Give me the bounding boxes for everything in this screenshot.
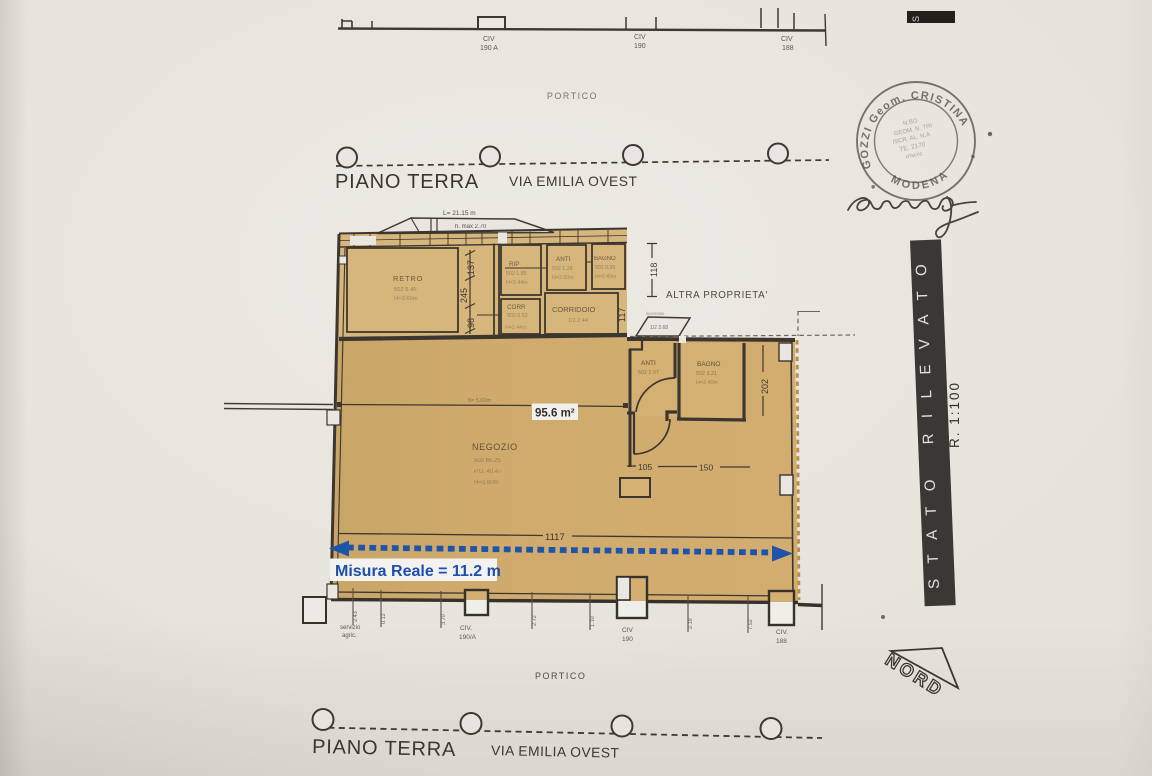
svg-text:RETRO: RETRO: [393, 274, 423, 283]
svg-text:CIV: CIV: [622, 627, 634, 634]
svg-text:CIV: CIV: [483, 36, 495, 43]
svg-text:BAGNO: BAGNO: [697, 361, 720, 368]
svg-text:190: 190: [622, 636, 633, 643]
svg-text:502 5.45: 502 5.45: [394, 287, 417, 293]
svg-text:d'iscriz: d'iscriz: [906, 151, 924, 160]
svg-text:190: 190: [634, 43, 646, 50]
svg-text:2.72: 2.72: [532, 615, 538, 626]
svg-text:502 65.25: 502 65.25: [474, 458, 501, 464]
svg-text:137: 137: [466, 260, 476, 275]
svg-text:CIV.: CIV.: [460, 625, 472, 632]
svg-text:2.19: 2.19: [688, 618, 694, 629]
svg-text:118: 118: [649, 263, 659, 277]
svg-text:L= 21.15 m: L= 21.15 m: [443, 210, 476, 217]
svg-text:190/A: 190/A: [459, 634, 477, 641]
svg-text:3.70: 3.70: [441, 614, 447, 625]
svg-text:lucernario: lucernario: [646, 311, 665, 316]
svg-text:NEGOZIO: NEGOZIO: [472, 442, 518, 452]
svg-text:117: 117: [617, 308, 627, 322]
svg-text:ANTI: ANTI: [641, 360, 656, 367]
svg-text:502 3.21: 502 3.21: [696, 371, 717, 377]
svg-text:1/2 2.44: 1/2 2.44: [568, 318, 588, 324]
svg-text:PORTICO: PORTICO: [547, 91, 598, 101]
svg-text:S: S: [911, 16, 921, 22]
svg-text:H=2.44m: H=2.44m: [505, 325, 527, 331]
svg-text:H=3.60m: H=3.60m: [474, 480, 499, 486]
svg-text:H=2.40m: H=2.40m: [696, 380, 719, 386]
svg-text:202: 202: [760, 379, 770, 394]
svg-text:VIA EMILIA OVEST: VIA EMILIA OVEST: [509, 174, 637, 189]
svg-text:H=3.60m: H=3.60m: [552, 275, 574, 281]
svg-text:H=3.44m: H=3.44m: [506, 280, 528, 286]
svg-text:502 0.52: 502 0.52: [507, 313, 528, 319]
svg-text:7.52: 7.52: [748, 619, 754, 630]
svg-text:CORR: CORR: [507, 304, 526, 311]
svg-text:105: 105: [638, 462, 652, 472]
svg-text:Misura Reale = 11.2 m: Misura Reale = 11.2 m: [335, 563, 501, 580]
svg-text:190 A: 190 A: [480, 45, 498, 52]
svg-text:150: 150: [699, 463, 713, 473]
svg-text:ALTRA PROPRIETA': ALTRA PROPRIETA': [666, 290, 768, 301]
svg-text:CIV: CIV: [634, 34, 646, 41]
svg-text:ANTI: ANTI: [556, 256, 571, 263]
svg-text:NORD: NORD: [882, 649, 948, 700]
svg-text:188: 188: [776, 638, 787, 645]
svg-text:PIANO TERRA: PIANO TERRA: [312, 736, 456, 761]
svg-text:1.10: 1.10: [590, 616, 596, 627]
svg-text:VIA EMILIA OVEST: VIA EMILIA OVEST: [491, 743, 620, 761]
svg-text:R. 1:100: R. 1:100: [947, 381, 962, 448]
svg-text:H=2.40m: H=2.40m: [595, 274, 616, 280]
svg-text:agric.: agric.: [342, 633, 357, 639]
svg-text:0.12: 0.12: [381, 613, 387, 624]
svg-text:502 1.85: 502 1.85: [506, 271, 527, 277]
svg-text:CIV.: CIV.: [776, 629, 788, 636]
svg-text:502 1.29: 502 1.29: [552, 266, 573, 272]
svg-text:CORRIDOIO: CORRIDOIO: [552, 305, 596, 314]
svg-text:BAGNO: BAGNO: [594, 256, 616, 262]
svg-text:H=3.60m: H=3.60m: [394, 296, 418, 302]
svg-text:1/2 2.68: 1/2 2.68: [650, 325, 668, 331]
svg-text:servizio: servizio: [340, 625, 361, 631]
svg-text:98: 98: [466, 318, 476, 328]
svg-text:2.43: 2.43: [353, 611, 359, 622]
svg-text:502 0.99: 502 0.99: [595, 265, 615, 271]
svg-text:5= 5.60m: 5= 5.60m: [468, 398, 492, 404]
svg-text:245: 245: [459, 288, 469, 303]
svg-text:188: 188: [782, 45, 794, 52]
svg-text:PORTICO: PORTICO: [535, 671, 586, 681]
svg-text:502 2.07: 502 2.07: [638, 370, 659, 376]
svg-text:P.U. 40.47: P.U. 40.47: [474, 469, 502, 475]
svg-text:h. max 2.70: h. max 2.70: [455, 224, 487, 230]
svg-text:1117: 1117: [545, 532, 565, 543]
svg-text:RIP: RIP: [509, 261, 520, 268]
svg-text:95.6 m²: 95.6 m²: [535, 408, 575, 420]
svg-text:CIV: CIV: [781, 36, 793, 43]
svg-text:PIANO TERRA: PIANO TERRA: [335, 171, 479, 193]
